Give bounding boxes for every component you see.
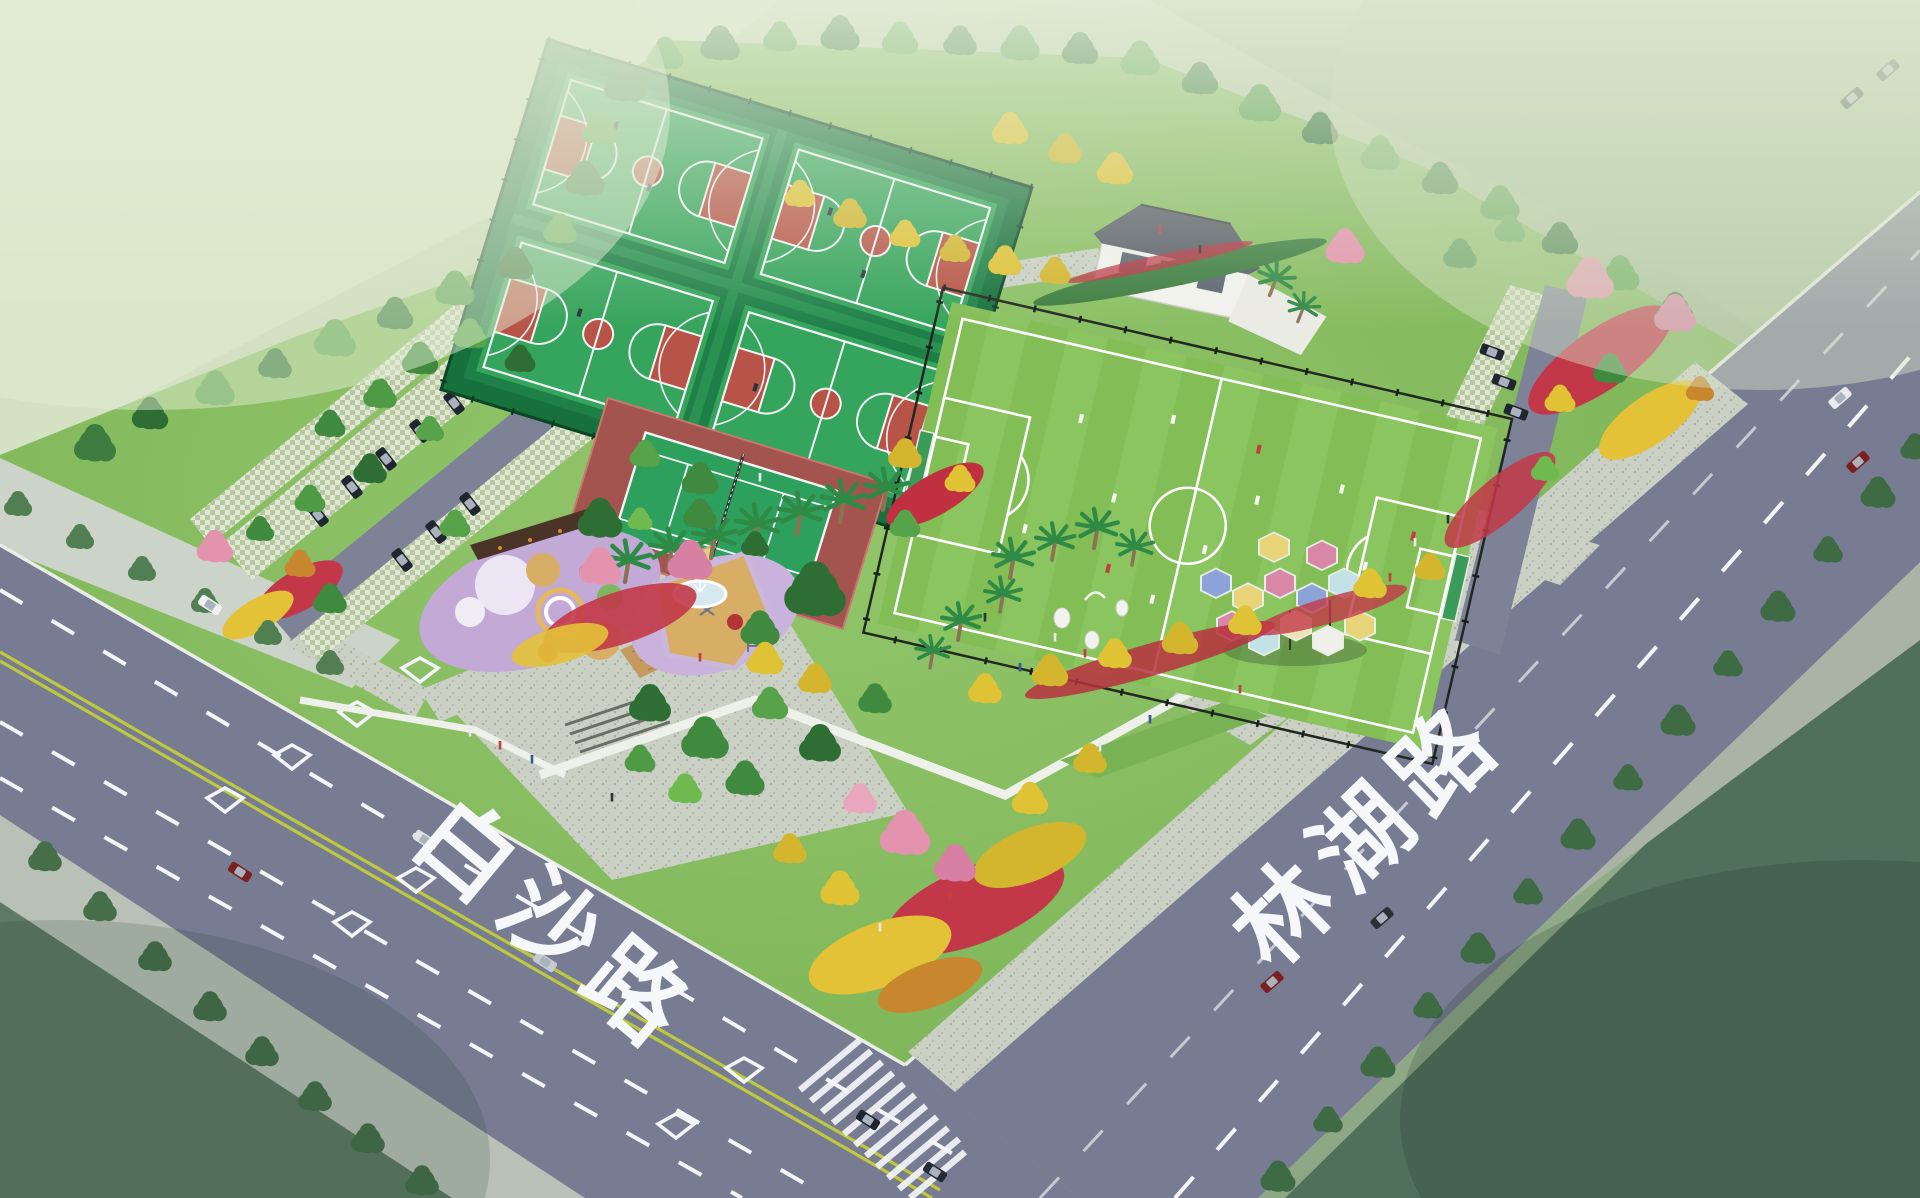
park-aerial-rendering: 白沙路 林湖路	[0, 0, 1920, 1198]
egg-sculpture	[1116, 600, 1128, 616]
egg-sculpture	[1054, 608, 1070, 628]
scene-canvas: 白沙路 林湖路	[0, 0, 1920, 1198]
egg-sculpture	[1085, 631, 1099, 649]
